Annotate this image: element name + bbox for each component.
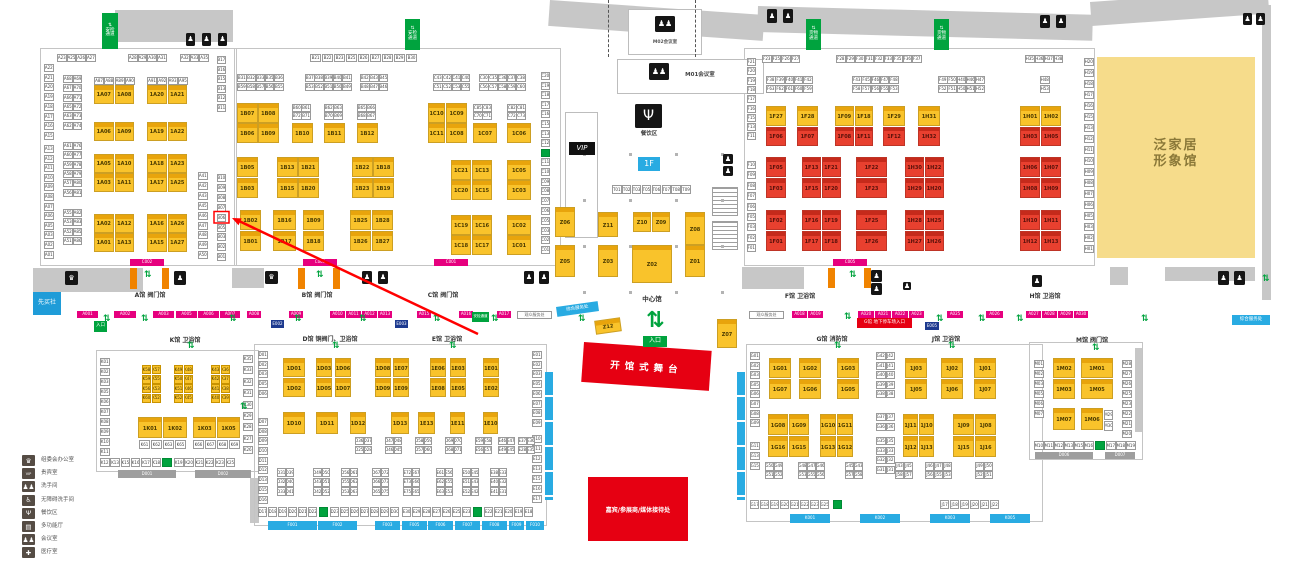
booth-label: 1F19: [824, 219, 838, 224]
booth-cell-F40: F40: [785, 76, 795, 84]
booth-cell-J53: J53: [943, 471, 952, 480]
booth-cell-A08: A08: [44, 193, 54, 201]
booth-cell-F57: F57: [861, 85, 871, 93]
booth-label: 1C16: [475, 224, 489, 229]
booth-cell-E56: E56: [475, 446, 484, 454]
booth-header: [451, 379, 465, 383]
booth-label: 1A27: [170, 241, 184, 246]
booth-cell-D36: D36: [355, 437, 364, 445]
booth-cell-D47: D47: [385, 437, 394, 445]
booth-label: 1B12: [360, 132, 374, 137]
booth-Z12: Z12: [594, 317, 622, 334]
booth-cell-B10: B10: [217, 174, 227, 182]
booth-cell-B72: B72: [292, 112, 302, 120]
booth-label: 1G05: [841, 388, 856, 393]
booth-cell-F02: F02: [747, 234, 757, 242]
booth-cell-T08: T08: [671, 185, 681, 194]
booth-cell-K55: K55: [152, 375, 161, 384]
booth-cell-F08: F08: [747, 182, 757, 190]
booth-label: 1F07: [801, 135, 815, 140]
booth-cell-C52: C52: [442, 83, 452, 91]
booth-1B06: 1B06: [237, 123, 258, 143]
booth-header: [800, 359, 820, 363]
booth-cell-E19: E19: [514, 507, 523, 517]
booth-cell-C07: C07: [541, 197, 551, 205]
booth-1D01: 1D01: [283, 358, 305, 377]
booth-cell-M05: M05: [1034, 390, 1044, 398]
booth-label: 1B18: [376, 166, 390, 171]
booth-cell-H13: H13: [1084, 124, 1094, 132]
booth-header: [394, 379, 408, 383]
escalator-arrow-icon: ⇅: [1262, 275, 1270, 284]
booth-cell-E42: E42: [471, 487, 480, 496]
booth-cell-J58: J58: [895, 471, 904, 480]
booth-label: 1M01: [1089, 367, 1104, 372]
booth-label: 1F06: [769, 135, 783, 140]
booth-1B09: 1B09: [303, 210, 324, 230]
escalator-arrow-icon: ⇅: [948, 342, 956, 351]
booth-cell-D72: D72: [381, 468, 390, 477]
booth-header: [148, 234, 166, 238]
booth-label: 1H27: [907, 240, 922, 245]
booth-cell-C01: C01: [541, 246, 551, 254]
booth-cell-K09: K09: [100, 428, 110, 436]
booth-cell-B38: B38: [314, 74, 324, 82]
booth-cell-G36: G36: [876, 423, 886, 431]
sign-K003: K003: [930, 514, 970, 523]
booth-cell-E49: E49: [498, 446, 507, 454]
booth-cell-F26: F26: [781, 55, 791, 63]
booth-1H27: 1H27: [905, 231, 924, 251]
booth-cell-C19: C19: [541, 82, 551, 90]
booth-cell-B12: B12: [217, 94, 227, 102]
booth-cell-K59: K59: [142, 375, 151, 384]
booth-label: Z11: [603, 224, 614, 229]
booth-header: [823, 158, 840, 162]
booth-cell-G55: G55: [807, 471, 816, 480]
booth-cell-E50: E50: [462, 468, 471, 477]
booth-cell-D65: D65: [372, 487, 381, 496]
booth-label: 1H22: [927, 166, 942, 171]
booth-label: 1C20: [454, 189, 468, 194]
booth-1F29: 1F29: [883, 106, 905, 126]
booth-cell-F49: F49: [938, 76, 948, 84]
booth-cell-B49: B49: [342, 83, 352, 91]
booth-cell-M28: M28: [1122, 360, 1132, 368]
booth-cell-A74: A74: [73, 122, 83, 130]
booth-cell-G06: G06: [750, 390, 760, 398]
booth-cell-C58: C58: [498, 83, 508, 91]
booth-label: 1J10: [920, 424, 932, 429]
booth-cell-K26: K26: [243, 446, 253, 454]
booth-cell-A46: A46: [198, 212, 208, 220]
booth-label: 1D12: [351, 422, 366, 427]
booth-cell-A57: A57: [63, 179, 73, 187]
sign-综合服务处: 综合服务处: [1232, 315, 1270, 325]
booth-label: 1M06: [1084, 418, 1099, 423]
booth-cell-G33: G33: [876, 447, 886, 455]
booth-1A11: 1A11: [115, 173, 135, 192]
booth-header: [284, 379, 304, 383]
booth-cell-K46: K46: [184, 384, 193, 393]
booth-cell-F36: F36: [903, 55, 913, 63]
booth-label: 1F22: [865, 166, 879, 171]
booth-cell-F37: F37: [912, 55, 922, 63]
booth-label: 1A25: [170, 181, 184, 186]
booth-header: [376, 359, 390, 363]
booth-header: [767, 232, 785, 236]
door-icon: ♟: [202, 33, 211, 46]
hall-label: B馆 阀门馆: [302, 292, 333, 299]
booth-cell-A63: A63: [63, 112, 73, 120]
booth-cell-M20: M20: [1122, 430, 1132, 438]
booth-header: [1042, 107, 1060, 111]
booth-header: [484, 379, 498, 383]
booth-label: Z08: [690, 228, 701, 233]
booth-header: [823, 232, 840, 236]
booth-1F09: 1F09: [835, 106, 854, 126]
booth-header: [508, 181, 530, 185]
booth-cell-T05: T05: [642, 185, 652, 194]
booth-header: [769, 437, 787, 441]
booth-cell-D50: D50: [322, 468, 331, 477]
booth-1G11: 1G11: [837, 414, 853, 435]
booth-label: 1H32: [922, 135, 937, 140]
booth-label: 1J09: [957, 424, 969, 429]
restroom-icon: ♟: [723, 154, 733, 164]
booth-1C16: 1C16: [472, 215, 492, 235]
booth-cell-B13: B13: [217, 85, 227, 93]
restroom-icon: ♟: [362, 271, 372, 284]
pillar: [583, 245, 586, 248]
booth-1J08: 1J08: [975, 414, 996, 435]
booth-cell-G43: G43: [854, 462, 863, 471]
booth-header: [447, 124, 466, 128]
booth-header: [1054, 409, 1074, 413]
booth-header: [508, 161, 530, 165]
booth-cell-G56: G56: [816, 471, 825, 480]
booth-1D09: 1D09: [375, 378, 391, 397]
booth-cell-E18: E18: [524, 507, 533, 517]
booth-header: [259, 124, 278, 128]
booth-1C05: 1C05: [507, 160, 531, 180]
booth-header: [836, 128, 853, 132]
booth-cell-A65: A65: [63, 103, 73, 111]
door-icon: ♟: [218, 33, 227, 46]
booth-label: 1F29: [887, 115, 901, 120]
booth-1C17: 1C17: [472, 235, 492, 255]
booth-cell-E03: E03: [532, 370, 542, 378]
booth-header: [954, 415, 973, 419]
booth-1H10: 1H10: [1020, 210, 1040, 230]
booth-cell-F63: F63: [766, 85, 776, 93]
booth-cell-D22: D22: [308, 507, 317, 517]
booth-1F23: 1F23: [856, 178, 887, 198]
booth-cell-F33: F33: [884, 55, 894, 63]
booth-cell-A27: A27: [86, 54, 96, 62]
booth-header: [803, 158, 820, 162]
booth-cell-D69: D69: [445, 437, 454, 445]
booth-1J01: 1J01: [974, 358, 996, 378]
booth-label: 1H26: [927, 240, 942, 245]
booth-header: [358, 124, 377, 128]
booth-label: 1A06: [97, 130, 111, 135]
booth-cell-E05: E05: [532, 380, 542, 388]
booth-header: [451, 413, 464, 417]
pillar: [675, 291, 678, 294]
stairs: [712, 221, 738, 250]
escalator-arrow-icon: ⇅: [849, 271, 857, 280]
booth-label: 1B08: [261, 112, 275, 117]
exhibition-floorplan: 开馆式舞台嘉宾/参展商/媒体接待处A23A25A26A27A28A29A30A3…: [0, 0, 1303, 562]
booth-header: [906, 380, 926, 384]
booth-header: [169, 123, 187, 127]
booth-cell-K69: K69: [229, 440, 240, 449]
booth-header: [767, 158, 785, 162]
booth-label: 1G11: [838, 424, 853, 429]
booth-cell-B46: B46: [379, 83, 389, 91]
booth-Z09: Z09: [652, 212, 670, 232]
booth-cell-E67: E67: [412, 468, 421, 477]
booth-label: 1A18: [150, 162, 164, 167]
booth-label: 1J07: [979, 388, 991, 393]
booth-cell-K39: K39: [221, 394, 230, 403]
booth-header: [634, 213, 650, 217]
booth-cell-A66: A66: [63, 94, 73, 102]
booth-cell-C11: C11: [541, 158, 551, 166]
legend-label: 贵宾室: [41, 471, 58, 477]
booth-cell-A69: A69: [73, 75, 83, 83]
booth-cell-D59: D59: [424, 437, 433, 445]
booth-cell-A31: A31: [157, 54, 167, 62]
booth-cell-A45: A45: [198, 202, 208, 210]
booth-cell-J19: J19: [960, 500, 969, 509]
booth-1K01: 1K01: [138, 417, 162, 438]
booth-cell-C81: C81: [516, 104, 526, 112]
booth-cell-C40: C40: [461, 74, 471, 82]
booth-cell-E61: E61: [436, 468, 445, 477]
booth-cell-D53: D53: [341, 487, 350, 496]
booth-cell-F07: F07: [747, 192, 757, 200]
booth-label: 1A11: [117, 181, 131, 186]
booth-1F06: 1F06: [766, 127, 786, 146]
booth-cell-A56: A56: [63, 189, 73, 197]
booth-cell-J38: J38: [886, 390, 896, 398]
booth-cell-B59: B59: [237, 83, 247, 91]
booth-header: [169, 234, 187, 238]
booth-cell-J39: J39: [886, 381, 896, 389]
booth-cell-C36: C36: [498, 74, 508, 82]
booth-cell-D17: D17: [258, 507, 267, 517]
booth-cell-C02: C02: [541, 236, 551, 244]
booth-1B28: 1B28: [372, 210, 393, 230]
booth-cell-K33: K33: [243, 366, 253, 374]
booth-header: [1021, 232, 1039, 236]
passage-cell: [833, 500, 842, 509]
booth-cell-E43: E43: [471, 478, 480, 487]
booth-label: 1F23: [865, 187, 879, 192]
booth-1E10: 1E10: [483, 412, 498, 434]
booth-header: [904, 437, 917, 441]
booth-header: [299, 179, 318, 183]
booth-cell-K57: K57: [152, 365, 161, 374]
booth-label: 1B10: [295, 132, 309, 137]
booth-1G02: 1G02: [799, 358, 821, 378]
booth-header: [351, 211, 370, 215]
booth-1M05: 1M05: [1081, 379, 1113, 399]
booth-header: [169, 215, 187, 219]
booth-label: 1B25: [353, 219, 367, 224]
booth-1F25: 1F25: [856, 210, 887, 230]
booth-cell-J46: J46: [925, 462, 934, 471]
booth-cell-E55: E55: [445, 478, 454, 487]
booth-cell-G38: G38: [876, 390, 886, 398]
booth-cell-A55: A55: [63, 209, 73, 217]
booth-cell-K23: K23: [215, 458, 225, 467]
booth-header: [770, 359, 790, 363]
booth-1M02: 1M02: [1053, 358, 1075, 378]
restroom-icon: ♟: [1218, 271, 1229, 285]
booth-label: 1D11: [320, 422, 335, 427]
escalator-arrow-icon: ⇅: [359, 315, 367, 324]
booth-cell-A70: A70: [73, 84, 83, 92]
booth-label: 1B18: [306, 240, 320, 245]
booth-cell-D60: D60: [424, 446, 433, 454]
booth-cell-D05: D05: [258, 380, 268, 388]
booth-cell-A48: A48: [198, 231, 208, 239]
booth-cell-F30: F30: [855, 55, 865, 63]
booth-cell-A35: A35: [199, 54, 209, 62]
booth-cell-E40: E40: [490, 478, 499, 487]
booth-1F12: 1F12: [883, 127, 905, 146]
booth-cell-K35: K35: [243, 355, 253, 363]
booth-cell-C17: C17: [541, 101, 551, 109]
booth-header: [1021, 179, 1039, 183]
booth-cell-H11: H11: [1084, 146, 1094, 154]
booth-1J03: 1J03: [905, 358, 927, 378]
booth-label: 1F12: [887, 135, 901, 140]
booth-cell-J33: J33: [886, 447, 896, 455]
booth-1J11: 1J11: [903, 414, 918, 435]
booth-cell-E51: E51: [462, 478, 471, 487]
booth-label: 1C11: [429, 132, 443, 137]
booth-cell-D43: D43: [313, 478, 322, 487]
booth-cell-E32: E32: [499, 478, 508, 487]
booth-cell-F53: F53: [889, 85, 899, 93]
booth-cell-A28: A28: [128, 54, 138, 62]
booth-cell-H03: H03: [1084, 223, 1094, 231]
booth-cell-G19: G19: [770, 500, 779, 509]
sign-A021: A021: [875, 311, 891, 318]
booth-header: [790, 415, 808, 419]
booth-cell-D41: D41: [286, 487, 295, 496]
booth-cell-F05: F05: [747, 213, 757, 221]
booth-header: [920, 437, 933, 441]
booth-cell-K32: K32: [243, 378, 253, 386]
booth-cell-F39: F39: [775, 76, 785, 84]
booth-header: [769, 415, 787, 419]
booth-cell-T06: T06: [652, 185, 662, 194]
booth-label: 1D07: [336, 387, 351, 392]
booth-cell-C41: C41: [452, 74, 462, 82]
booth-cell-H38: H38: [1054, 55, 1064, 63]
booth-1F08: 1F08: [835, 127, 854, 146]
booth-label: 1E11: [451, 422, 465, 427]
booth-label: 1B06: [240, 132, 254, 137]
sign-A002: A002: [114, 311, 136, 318]
booth-label: 1A17: [150, 181, 164, 186]
sign-A005: A005: [176, 311, 197, 318]
booth-label: 1A23: [170, 162, 184, 167]
booth-cell-K03: K03: [100, 378, 110, 386]
booth-cell-F46: F46: [871, 76, 881, 84]
booth-header: [164, 418, 186, 422]
restroom-icon: ♟: [723, 166, 733, 176]
booth-cell-A90: A90: [125, 77, 135, 85]
booth-1B01: 1B01: [240, 231, 261, 251]
booth-cell-D03: D03: [258, 370, 268, 378]
booth-cell-E36: E36: [527, 437, 536, 445]
booth-label: 1E10: [484, 422, 498, 427]
booth-label: 1H10: [1023, 219, 1038, 224]
booth-header: [451, 359, 465, 363]
opening-stage: 开馆式舞台: [581, 342, 711, 391]
booth-cell-K50: K50: [174, 375, 183, 384]
booth-cell-G21: G21: [790, 500, 799, 509]
booth-cell-D25: D25: [355, 446, 364, 454]
booth-cell-J20: J20: [970, 500, 979, 509]
sign-A008: A008: [247, 311, 261, 318]
booth-cell-G47: G47: [807, 462, 816, 471]
booth-cell-B67: B67: [366, 112, 376, 120]
booth-label: 1H28: [907, 219, 922, 224]
booth-cell-J52: J52: [975, 471, 984, 480]
booth-cell-F38: F38: [766, 76, 776, 84]
booth-1G09: 1G09: [789, 414, 809, 435]
booth-cell-C57: C57: [488, 83, 498, 91]
escalator-arrow-icon: ⇅: [240, 403, 248, 412]
booth-1H07: 1H07: [1041, 157, 1061, 177]
booth-header: [317, 413, 337, 417]
booth-label: 1A01: [97, 241, 111, 246]
booth-1H12: 1H12: [1020, 231, 1040, 251]
booth-cell-A71: A71: [73, 94, 83, 102]
booth-1B20: 1B20: [298, 178, 319, 198]
restroom-icon: ♟: [174, 271, 186, 285]
booth-cell-F25: F25: [772, 55, 782, 63]
booth-cell-G02: G02: [750, 362, 760, 370]
booth-cell-K65: K65: [175, 440, 186, 449]
booth-label: 1A26: [170, 222, 184, 227]
booth-cell-A85: A85: [73, 228, 83, 236]
door-icon: ♟: [767, 9, 777, 23]
booth-cell-G40: G40: [876, 371, 886, 379]
booth-header: [238, 124, 257, 128]
booth-header: [838, 415, 852, 419]
sign-A020: A020: [858, 311, 874, 318]
booth-cell-A78: A78: [73, 161, 83, 169]
restroom-icon: ♟: [1234, 271, 1245, 285]
booth-cell-J32: J32: [886, 456, 896, 464]
booth-label: 1H06: [1023, 166, 1038, 171]
booth-1A25: 1A25: [168, 173, 188, 192]
booth-1B10: 1B10: [292, 123, 313, 143]
booth-cell-A88: A88: [104, 77, 114, 85]
booth-header: [767, 179, 785, 183]
booth-cell-G03: G03: [750, 371, 760, 379]
booth-cell-E35: E35: [527, 446, 536, 454]
booth-1G06: 1G06: [799, 379, 821, 399]
